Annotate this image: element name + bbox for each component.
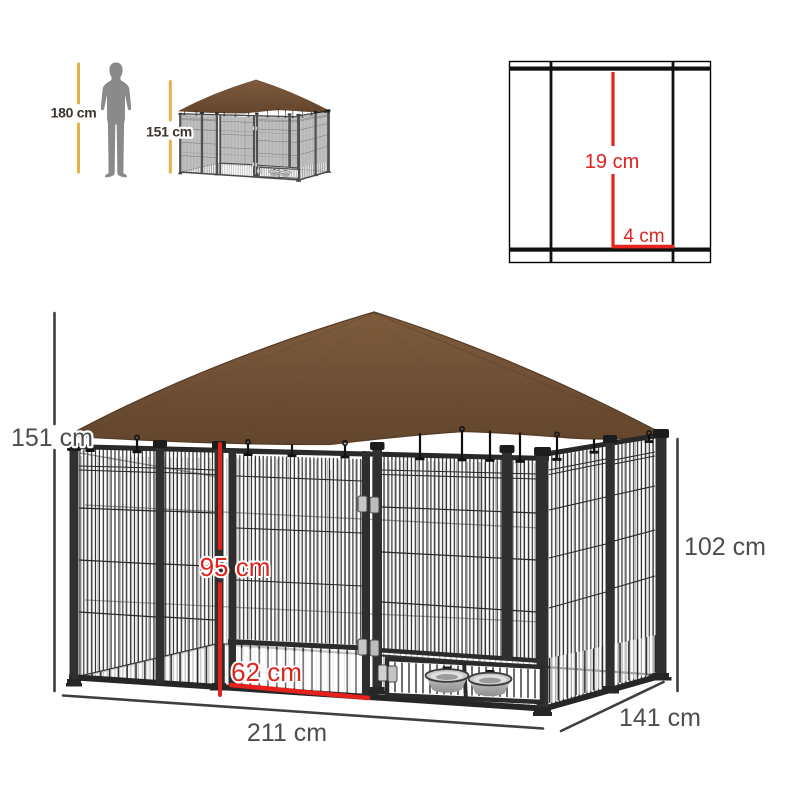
svg-text:141 cm: 141 cm [619, 704, 701, 732]
svg-text:151 cm: 151 cm [11, 424, 93, 452]
svg-text:95 cm: 95 cm [200, 552, 271, 582]
svg-text:19 cm: 19 cm [585, 151, 639, 173]
svg-text:211 cm: 211 cm [247, 719, 327, 747]
svg-text:151 cm: 151 cm [146, 124, 192, 140]
svg-text:62 cm: 62 cm [231, 657, 302, 687]
svg-text:102 cm: 102 cm [684, 533, 766, 561]
svg-text:180 cm: 180 cm [51, 105, 97, 121]
svg-text:4 cm: 4 cm [623, 226, 664, 247]
